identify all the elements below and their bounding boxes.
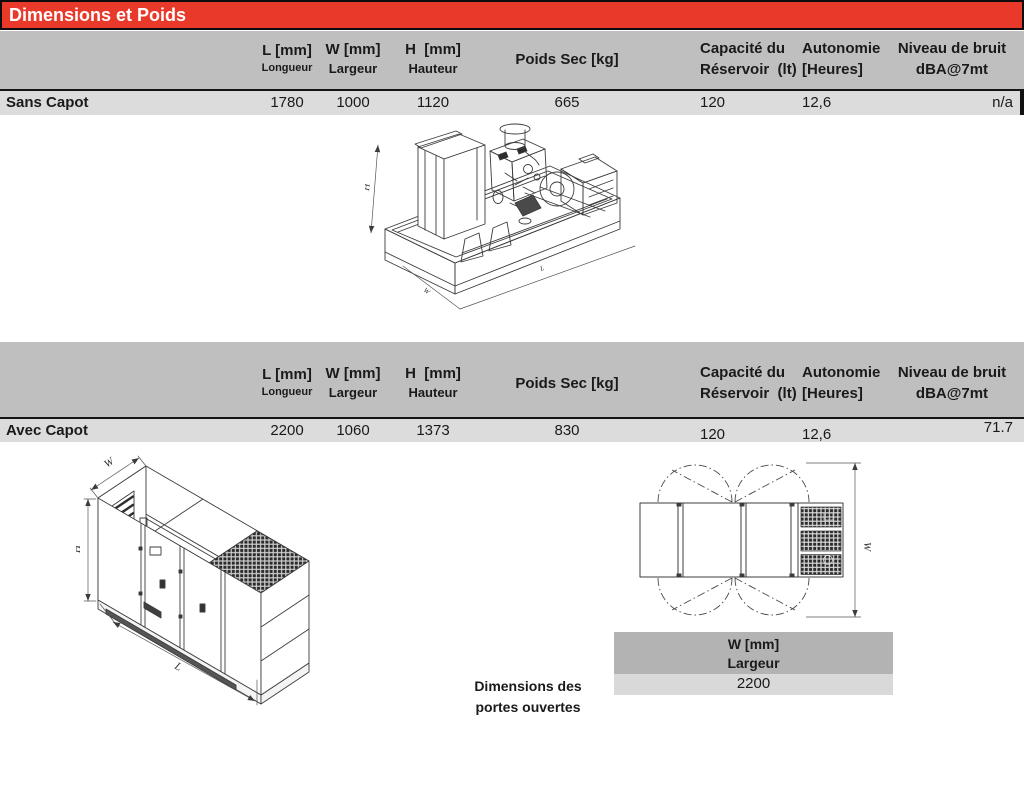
row-label: Avec Capot	[6, 419, 88, 443]
value-dry-weight: 665	[487, 91, 647, 115]
col-header-noise-1: Niveau de bruit	[887, 40, 1017, 57]
dim-label-w: W	[861, 542, 873, 552]
engine	[490, 139, 547, 216]
open-doors-table-value: 2200	[614, 674, 893, 695]
section-title-bar: Dimensions et Poids	[0, 0, 1024, 30]
col-subheader-height: Hauteur	[383, 61, 483, 76]
col-header-noise-2: dBA@7mt	[887, 61, 1017, 78]
col-header-noise-1: Niveau de bruit	[887, 364, 1017, 381]
table-row-avec-capot: Avec Capot 2200 1060 1373 830 120 12,6 7…	[0, 419, 1024, 442]
open-doors-caption-line1: Dimensions des	[448, 676, 608, 697]
dim-label-h: H	[76, 544, 83, 554]
col-header-dry-weight: Poids Sec [kg]	[487, 375, 647, 392]
dim-label-w-small: W	[422, 286, 432, 297]
row-edge-mark	[1020, 91, 1024, 115]
open-doors-top-view-drawing: W	[628, 450, 878, 630]
value-height: 1120	[383, 91, 483, 115]
table-avec-capot-header: L [mm] Longueur W [mm] Largeur H [mm] Ha…	[0, 342, 1024, 419]
open-doors-caption-line2: portes ouvertes	[448, 697, 608, 718]
open-genset-drawing: H W L	[365, 113, 655, 313]
dim-label-h: H	[365, 182, 373, 192]
roof-grille-plan	[801, 507, 841, 575]
table-row-sans-capot: Sans Capot 1780 1000 1120 665 120 12,6 n…	[0, 91, 1024, 115]
page-title: Dimensions et Poids	[9, 5, 186, 26]
col-subheader-height: Hauteur	[383, 385, 483, 400]
value-height: 1373	[383, 419, 483, 443]
col-header-noise-2: dBA@7mt	[887, 385, 1017, 402]
open-doors-header-main: W [mm]	[614, 635, 893, 654]
dim-label-w: W	[102, 455, 117, 471]
col-header-height: H [mm]	[383, 41, 483, 58]
value-dry-weight: 830	[487, 419, 647, 443]
dim-label-l-small: L	[538, 264, 545, 273]
open-doors-caption: Dimensions des portes ouvertes	[448, 676, 608, 718]
value-noise: n/a	[887, 91, 1013, 115]
open-doors-table-header: W [mm] Largeur	[614, 632, 893, 674]
open-doors-header-sub: Largeur	[614, 654, 893, 673]
dim-label-l: L	[172, 660, 184, 674]
row-label: Sans Capot	[6, 91, 89, 115]
radiator	[415, 131, 485, 239]
table-sans-capot-header: L [mm] Longueur W [mm] Largeur H [mm] Ha…	[0, 31, 1024, 91]
datasheet-page: Dimensions et Poids L [mm] Longueur W [m…	[0, 0, 1024, 785]
col-header-height: H [mm]	[383, 365, 483, 382]
door-swing-arcs	[658, 465, 809, 615]
canopy-genset-drawing: W H L	[76, 452, 336, 710]
value-noise: 71.7	[887, 416, 1013, 440]
col-header-dry-weight: Poids Sec [kg]	[487, 51, 647, 68]
